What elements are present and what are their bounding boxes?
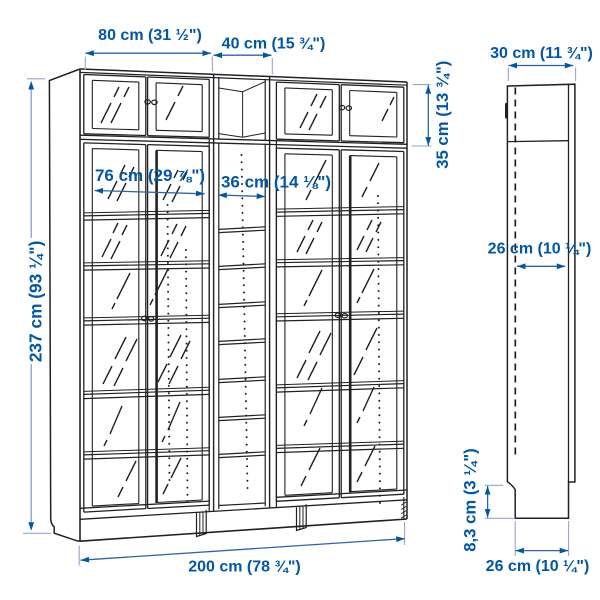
svg-text:40 cm (15 ¾"): 40 cm (15 ¾") <box>222 36 326 53</box>
svg-text:26 cm (10 ¼"): 26 cm (10 ¼") <box>486 558 590 575</box>
svg-text:237 cm (93 ¼"): 237 cm (93 ¼") <box>26 241 46 363</box>
svg-text:36 cm (14 ⅛"): 36 cm (14 ⅛") <box>221 173 331 192</box>
svg-text:35 cm (13 ¾"): 35 cm (13 ¾") <box>433 61 452 169</box>
svg-text:200 cm (78 ¾"): 200 cm (78 ¾") <box>188 559 301 576</box>
svg-text:80 cm (31 ½"): 80 cm (31 ½") <box>98 27 202 44</box>
svg-text:26 cm (10 ¼"): 26 cm (10 ¼") <box>488 241 592 258</box>
svg-text:8,3 cm (3 ¼"): 8,3 cm (3 ¼") <box>461 448 480 551</box>
svg-text:76 cm (29 ⅞"): 76 cm (29 ⅞") <box>95 166 205 185</box>
svg-text:30 cm (11 ¾"): 30 cm (11 ¾") <box>490 45 593 62</box>
